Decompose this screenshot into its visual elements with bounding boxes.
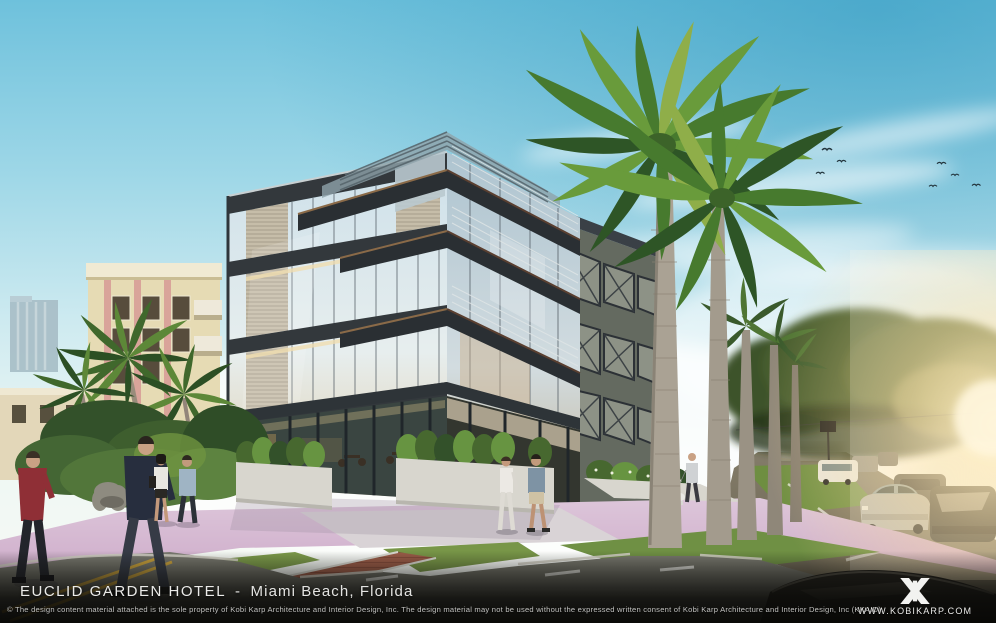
sun-glare [640, 250, 996, 580]
copyright-line: © The design content material attached i… [7, 605, 883, 614]
brand-block: WWW.KOBIKARP.COM [840, 578, 990, 616]
project-title: EUCLID GARDEN HOTEL-Miami Beach, Florida [20, 584, 413, 599]
rendering-board: EUCLID GARDEN HOTEL-Miami Beach, Florida… [0, 0, 996, 623]
project-location: Miami Beach, Florida [251, 583, 414, 600]
project-name: EUCLID GARDEN HOTEL [20, 583, 226, 600]
scene-svg [0, 0, 996, 623]
distant-tower [10, 296, 58, 372]
title-separator: - [235, 583, 242, 600]
website-url: WWW.KOBIKARP.COM [840, 606, 990, 616]
caption-bar: EUCLID GARDEN HOTEL-Miami Beach, Florida… [0, 551, 996, 623]
kobi-karp-monogram-icon [897, 578, 933, 604]
